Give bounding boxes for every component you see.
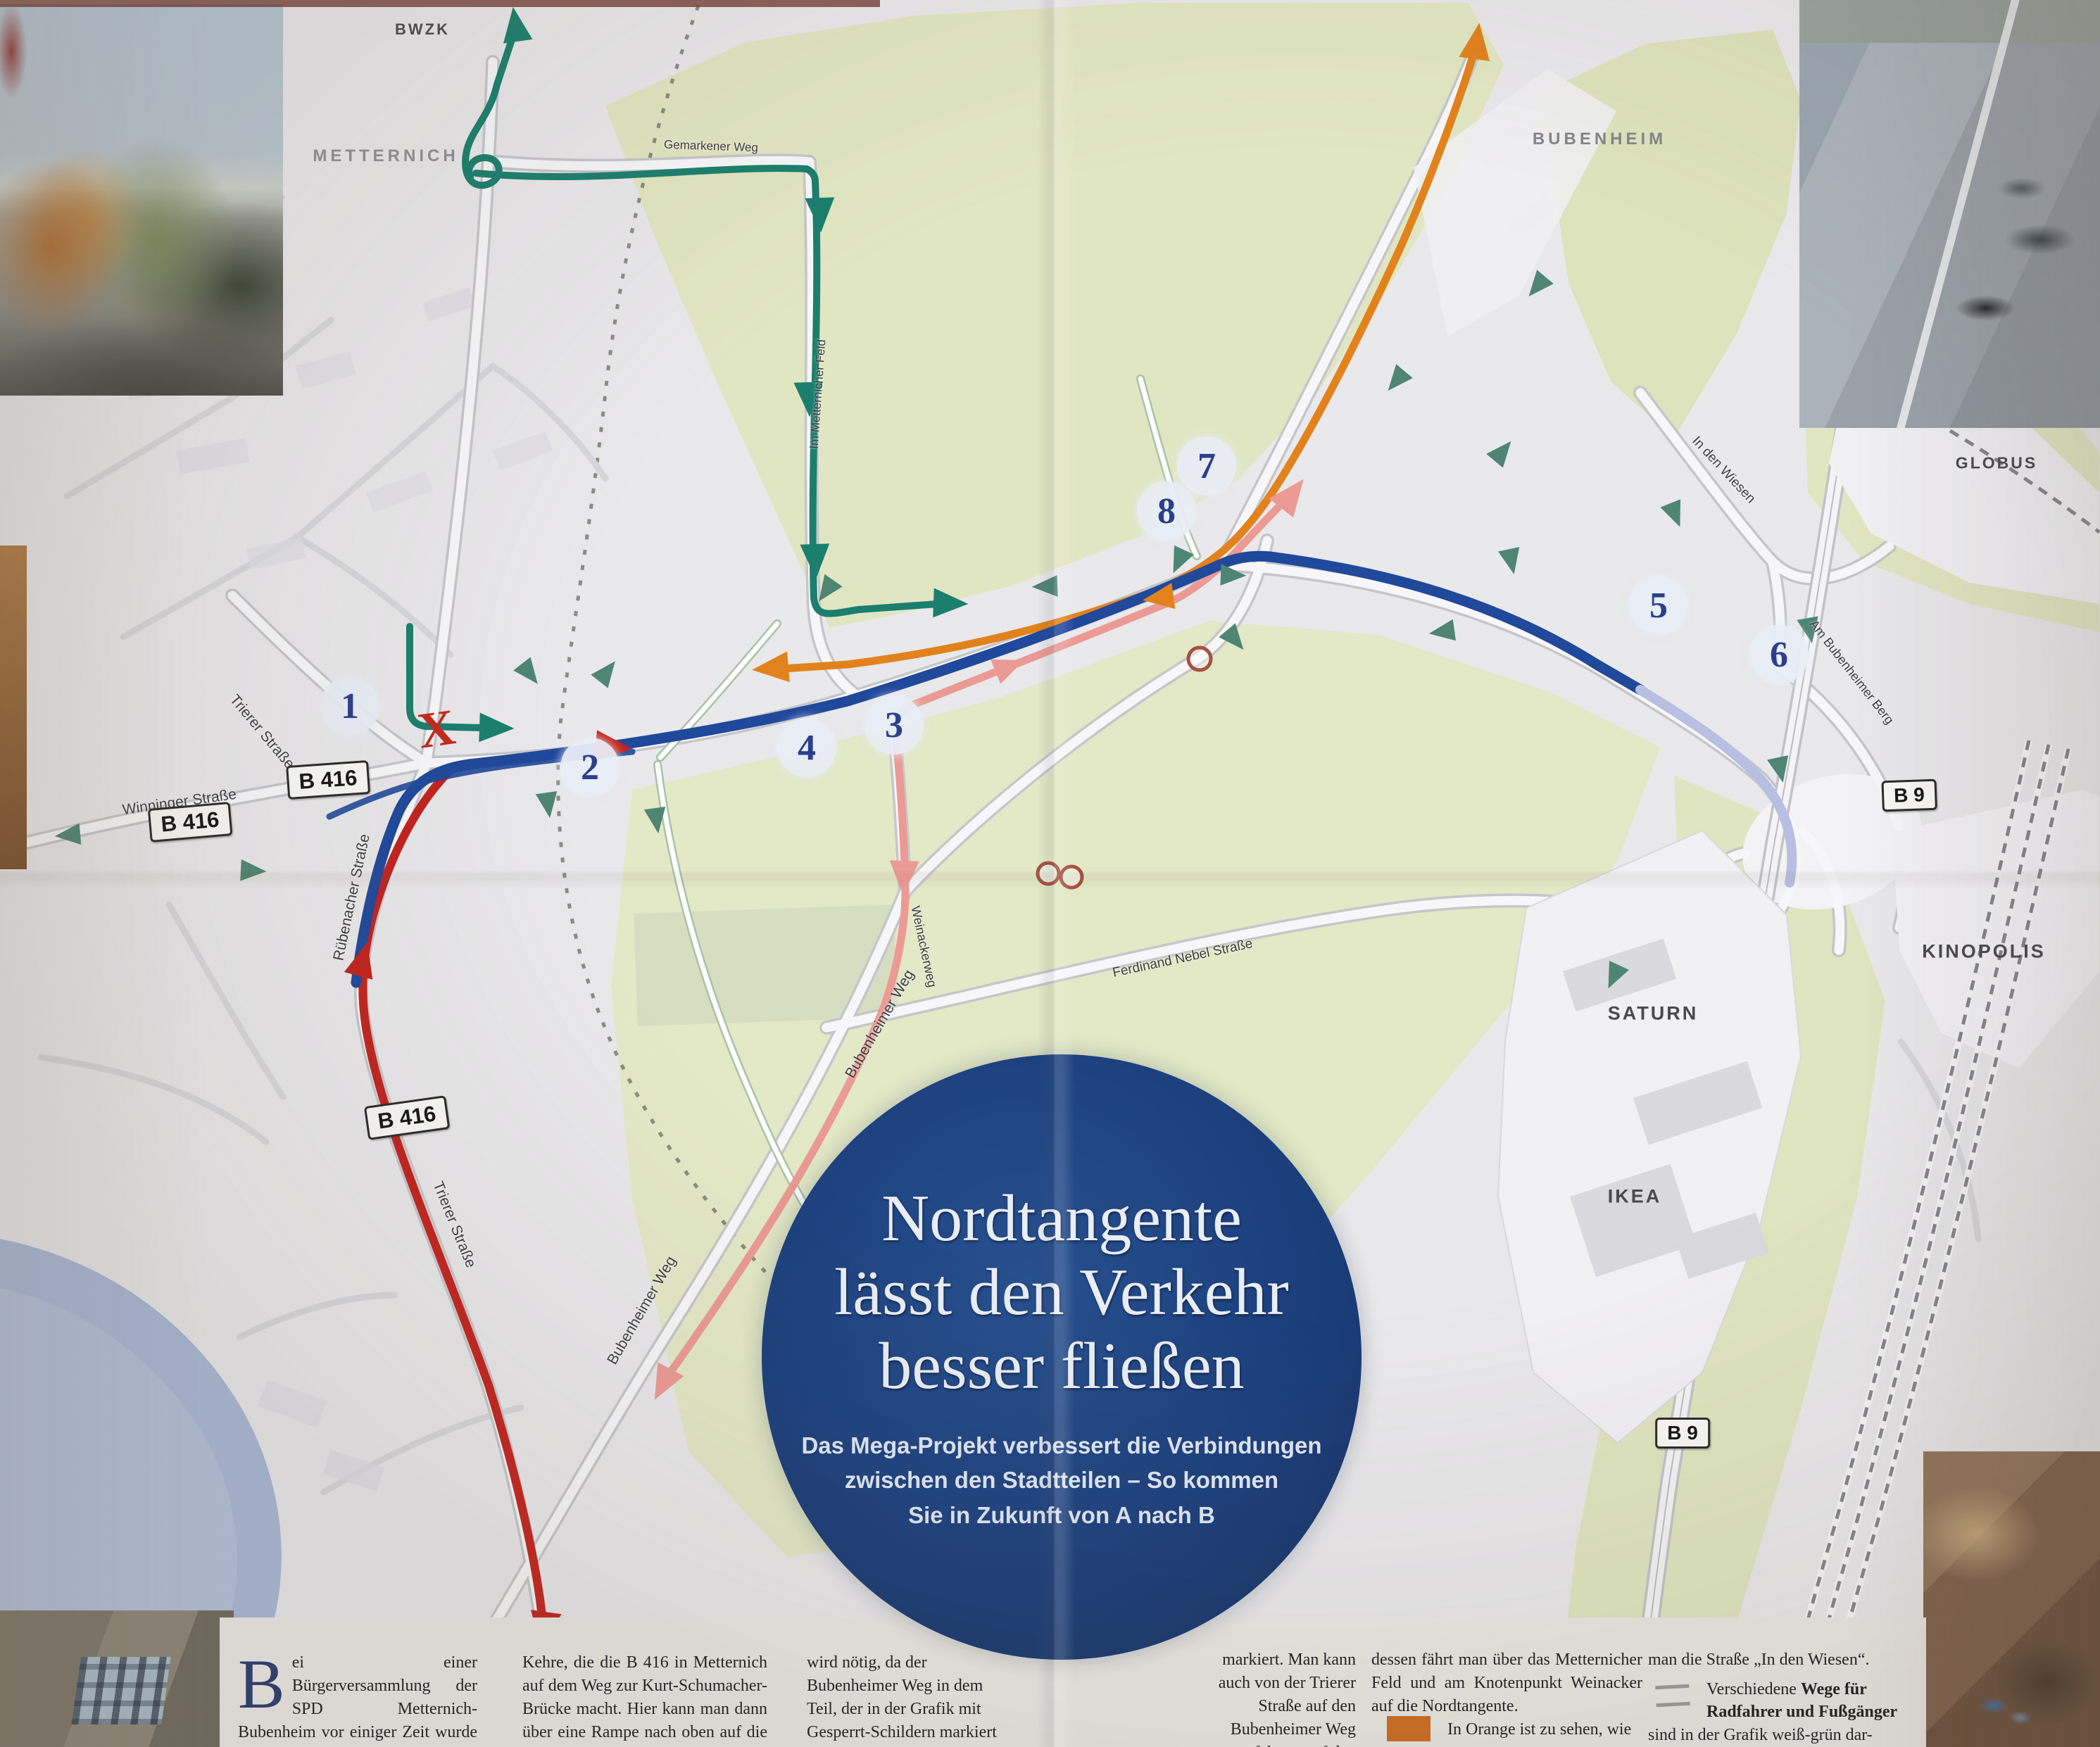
article-text: Kehre, die die B 416 in Metternich auf d… (522, 1653, 767, 1747)
route-red (363, 748, 600, 1619)
article-column-3: wird nötig, da der Bubenheimer Weg in de… (807, 1651, 1005, 1747)
map-marker-7: 7 (1177, 436, 1236, 496)
shield-b9-sued: B 9 (1655, 1418, 1710, 1449)
photo-street-autumn (0, 4, 283, 396)
shield-b9-ost: B 9 (1881, 779, 1937, 812)
photo-building-detail (71, 1657, 170, 1724)
article-text: wird nötig, da der Bubenheimer Weg in de… (807, 1653, 997, 1747)
marker-label: 6 (1770, 634, 1788, 676)
map-marker-8: 8 (1137, 481, 1196, 541)
legend-paths-suffix: sind in der Grafik weiß-grün dar- (1648, 1726, 1873, 1745)
label-ikea: IKEA (1608, 1186, 1662, 1208)
headline-line: besser fließen (879, 1330, 1244, 1404)
marker-label: 7 (1197, 446, 1216, 487)
map-marker-3: 3 (864, 695, 924, 755)
subhead: Das Mega-Projekt verbessert die Verbindu… (801, 1428, 1321, 1533)
subhead-line: zwischen den Stadtteilen – So kommen (801, 1463, 1321, 1498)
article-text: man die Straße „In den Wiesen“. (1648, 1651, 1869, 1669)
article-column-1: Bei einer Bürgerversammlung der SPD Mett… (238, 1651, 477, 1747)
map-marker-2: 2 (560, 738, 620, 797)
legend-orange-swatch (1387, 1716, 1431, 1741)
legend-path-icon (1655, 1684, 1690, 1707)
photo-highway-cars (1799, 0, 2100, 428)
shield-b416-west: B 416 (148, 802, 232, 843)
shield-b416-center: B 416 (286, 760, 370, 800)
legend-paths-text: Verschiedene Wege für Radfahrer und Fußg… (1706, 1678, 1918, 1724)
label-saturn: SATURN (1608, 1003, 1699, 1025)
article-column-5: dessen fährt man über das Metternicher F… (1371, 1648, 1642, 1716)
marker-label: 8 (1157, 491, 1176, 532)
marker-label: 5 (1649, 585, 1668, 626)
label-metternich: METTERNICH (313, 146, 458, 166)
marker-label: 4 (798, 727, 816, 769)
label-globus: GLOBUS (1956, 454, 2037, 473)
drop-cap: B (238, 1651, 292, 1713)
article-column-6: man die Straße „In den Wiesen“. (1648, 1648, 1909, 1677)
photo-aerial-town (0, 1610, 234, 1747)
article-text: markiert. Man kann auch von der Trierer … (1219, 1651, 1356, 1747)
article-column-4: markiert. Man kann auch von der Trierer … (1197, 1648, 1356, 1747)
map-marker-6: 6 (1749, 625, 1809, 684)
headline-line: lässt den Verkehr (834, 1256, 1289, 1330)
photo-edge-sliver (0, 545, 27, 869)
marker-label: 2 (581, 747, 599, 788)
marker-label: 1 (341, 686, 359, 727)
article-text: dessen fährt man über das Metternicher F… (1371, 1651, 1642, 1715)
map-marker-4: 4 (777, 718, 836, 777)
page-top-edge (0, 0, 880, 7)
legend-paths-prefix: Verschiedene (1706, 1680, 1801, 1698)
map-marker-1: 1 (320, 676, 379, 736)
label-kinopolis: KINOPOLIS (1922, 941, 2046, 963)
legend-orange-text: In Orange ist zu sehen, wie (1447, 1720, 1631, 1739)
headline-line: Nordtangente (881, 1182, 1242, 1256)
photo-construction-site (1923, 1451, 2100, 1747)
map-marker-5: 5 (1629, 576, 1688, 635)
marker-label: 3 (885, 705, 903, 746)
subhead-line: Sie in Zukunft von A nach B (801, 1498, 1321, 1533)
subhead-line: Das Mega-Projekt verbessert die Verbindu… (801, 1428, 1321, 1463)
label-bwzk: BWZK (395, 20, 450, 39)
article-column-2: Kehre, die die B 416 in Metternich auf d… (522, 1651, 767, 1747)
headline-circle: Nordtangente lässt den Verkehr besser fl… (762, 1054, 1362, 1660)
label-bubenheim: BUBENHEIM (1533, 130, 1666, 149)
newspaper-map-page: BWZK METTERNICH BUBENHEIM GLOBUS KINOPOL… (0, 0, 2100, 1747)
